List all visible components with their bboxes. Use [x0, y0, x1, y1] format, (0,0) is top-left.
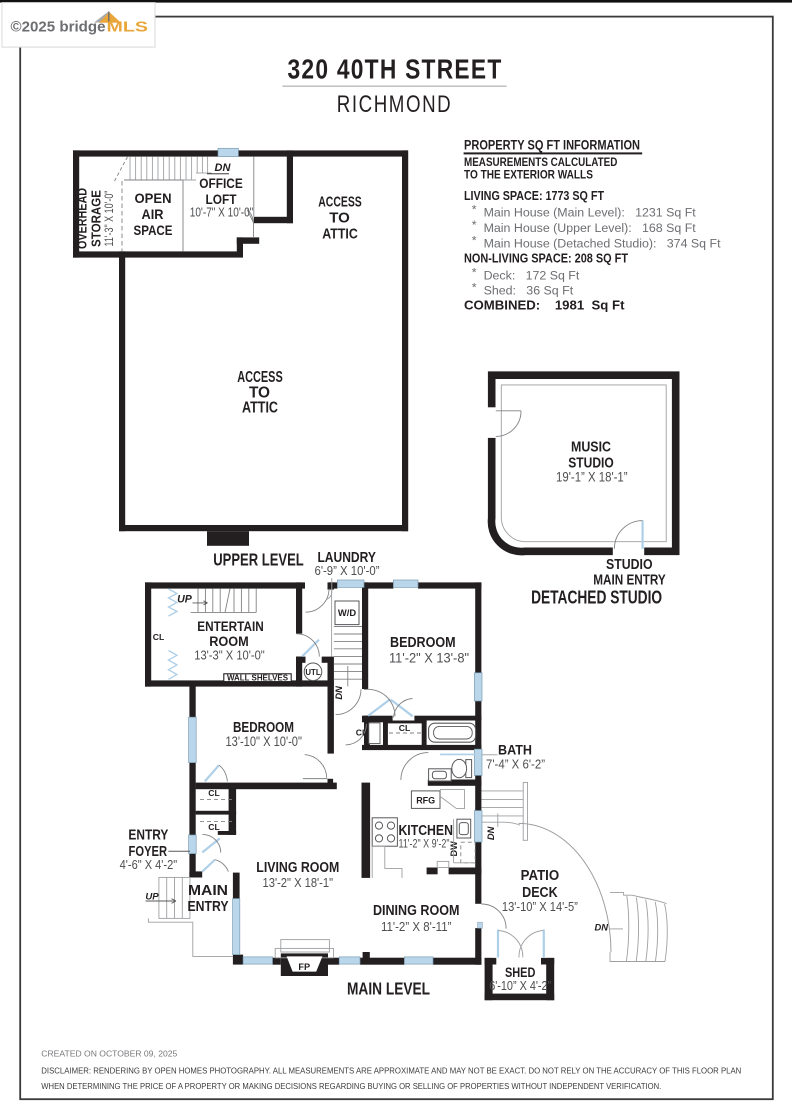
svg-text:CL: CL	[356, 728, 367, 738]
svg-text:WALL SHELVES: WALL SHELVES	[227, 674, 289, 683]
svg-text:*: *	[472, 280, 477, 294]
svg-text:UTL: UTL	[305, 668, 320, 677]
svg-text:TO THE EXTERIOR WALLS: TO THE EXTERIOR WALLS	[464, 168, 593, 182]
svg-text:ENTRY: ENTRY	[128, 828, 168, 844]
svg-text:CL: CL	[208, 822, 219, 832]
svg-text:SHED: SHED	[505, 964, 536, 980]
svg-text:MAIN LEVEL: MAIN LEVEL	[347, 978, 430, 998]
svg-text:ENTRY: ENTRY	[188, 899, 229, 915]
svg-text:UPPER LEVEL: UPPER LEVEL	[213, 550, 304, 570]
svg-text:UP: UP	[177, 594, 193, 606]
svg-text:BATH: BATH	[498, 742, 532, 757]
svg-text:13'-10" X 10'-0": 13'-10" X 10'-0"	[225, 734, 302, 749]
svg-text:6'-10” X 4'-2”: 6'-10” X 4'-2”	[489, 979, 551, 993]
svg-text:ATTIC: ATTIC	[322, 226, 358, 243]
svg-text:LIVING ROOM: LIVING ROOM	[256, 860, 339, 876]
svg-text:*: *	[472, 265, 477, 279]
svg-text:DN: DN	[333, 686, 344, 700]
svg-text:SPACE: SPACE	[134, 222, 173, 238]
svg-text:6'-9” X 10'-0”: 6'-9” X 10'-0”	[315, 563, 380, 578]
svg-text:COMBINED: 1981 Sq Ft: COMBINED: 1981 Sq Ft	[464, 297, 625, 312]
svg-text:*: *	[472, 218, 477, 232]
svg-text:OVERHEAD: OVERHEAD	[75, 188, 90, 249]
svg-text:CREATED ON OCTOBER 09, 2025: CREATED ON OCTOBER 09, 2025	[41, 1050, 178, 1059]
svg-text:MUSIC: MUSIC	[571, 439, 611, 455]
svg-text:7'-4” X 6'-2”: 7'-4” X 6'-2”	[486, 757, 545, 771]
svg-text:DN: DN	[215, 162, 232, 174]
svg-text:*: *	[472, 203, 477, 217]
svg-text:LIVING SPACE: 1773 SQ FT: LIVING SPACE: 1773 SQ FT	[464, 188, 604, 203]
svg-text:STORAGE: STORAGE	[89, 190, 104, 247]
svg-text:320 40TH STREET: 320 40TH STREET	[288, 54, 503, 85]
svg-text:RFG: RFG	[416, 795, 435, 805]
svg-text:Main House (Main Level): 123: Main House (Main Level): 1231 Sq Ft	[484, 206, 697, 220]
svg-text:Shed: 36 Sq Ft: Shed: 36 Sq Ft	[484, 284, 574, 298]
svg-text:RICHMOND: RICHMOND	[337, 91, 453, 118]
svg-text:DETACHED STUDIO: DETACHED STUDIO	[531, 586, 662, 607]
svg-text:DN: DN	[595, 921, 609, 932]
svg-text:ENTERTAIN: ENTERTAIN	[197, 619, 264, 635]
svg-text:11'-2" X 13'-8": 11'-2" X 13'-8"	[389, 650, 469, 665]
svg-text:Main House (Upper Level): 16: Main House (Upper Level): 168 Sq Ft	[484, 221, 697, 235]
svg-text:CL: CL	[399, 723, 410, 733]
svg-text:4'-6" X 4'-2": 4'-6" X 4'-2"	[120, 858, 178, 872]
svg-text:PROPERTY SQ FT INFORMATION: PROPERTY SQ FT INFORMATION	[464, 138, 640, 153]
svg-text:*: *	[472, 233, 477, 247]
svg-text:ACCESS: ACCESS	[237, 369, 283, 386]
svg-text:19'-1” X 18'-1”: 19'-1” X 18'-1”	[556, 469, 628, 485]
svg-text:11'-3" X 10'-0": 11'-3" X 10'-0"	[103, 191, 116, 247]
svg-text:©2025 bridge: ©2025 bridge	[11, 19, 106, 36]
svg-text:ACCESS: ACCESS	[318, 194, 362, 211]
svg-text:OPEN: OPEN	[135, 190, 172, 206]
svg-text:ATTIC: ATTIC	[242, 400, 278, 417]
svg-text:DISCLAIMER: RENDERING BY OPEN: DISCLAIMER: RENDERING BY OPEN HOMES PHOT…	[41, 1066, 741, 1075]
svg-text:CL: CL	[153, 632, 164, 642]
svg-text:13'-3" X 10'-0": 13'-3" X 10'-0"	[194, 648, 265, 663]
svg-text:FP: FP	[298, 962, 310, 972]
svg-text:13'-2" X 18'-1": 13'-2" X 18'-1"	[263, 875, 334, 890]
svg-text:PATIO: PATIO	[521, 868, 560, 884]
svg-text:MAIN: MAIN	[188, 883, 228, 899]
svg-text:10'-7" X 10'-0": 10'-7" X 10'-0"	[190, 204, 254, 219]
svg-text:BEDROOM: BEDROOM	[390, 635, 456, 651]
svg-text:WHEN DETERMINING THE PRICE OF: WHEN DETERMINING THE PRICE OF A PROPERTY…	[41, 1082, 661, 1091]
svg-text:CL: CL	[208, 788, 219, 798]
svg-text:Deck: 172 Sq Ft: Deck: 172 Sq Ft	[484, 269, 580, 283]
svg-text:AIR: AIR	[142, 206, 164, 222]
svg-text:DINING ROOM: DINING ROOM	[373, 903, 460, 919]
svg-text:TO: TO	[329, 210, 350, 227]
svg-text:13'-10” X 14'-5”: 13'-10” X 14'-5”	[502, 899, 578, 914]
svg-text:11'-2” X 8'-11”: 11'-2” X 8'-11”	[381, 919, 452, 934]
svg-text:DN: DN	[485, 826, 496, 840]
svg-text:11'-2" X 9'-2": 11'-2" X 9'-2"	[399, 836, 450, 850]
svg-text:Main House (Detached Studio):: Main House (Detached Studio): 374 Sq Ft	[484, 237, 721, 251]
svg-text:OFFICE: OFFICE	[199, 175, 243, 191]
svg-text:W/D: W/D	[338, 607, 356, 618]
svg-text:NON-LIVING SPACE: 208 SQ FT: NON-LIVING SPACE: 208 SQ FT	[464, 251, 628, 266]
